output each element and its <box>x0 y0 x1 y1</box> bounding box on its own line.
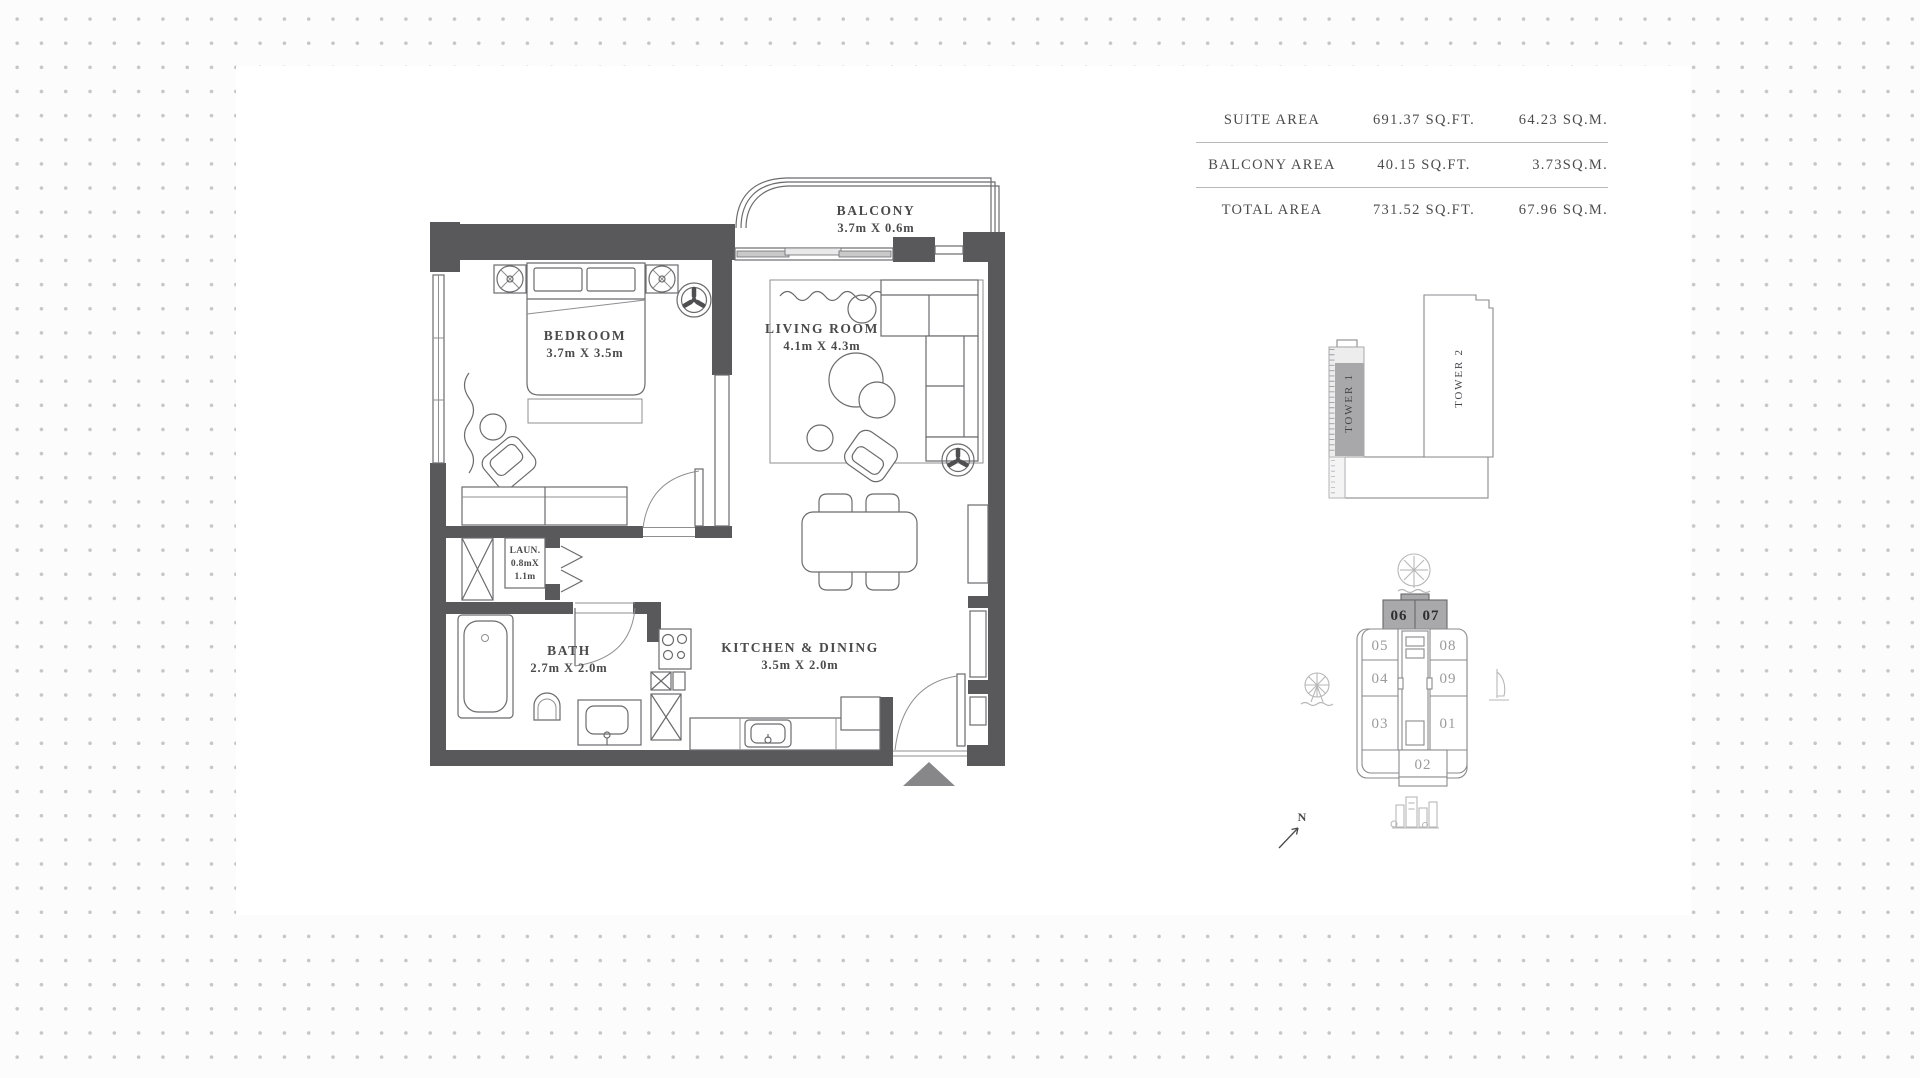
bedroom-armchair <box>479 433 540 493</box>
kitchen-shaft-small <box>651 672 685 690</box>
living-window <box>935 246 963 254</box>
tower-2-label: TOWER 2 <box>1453 348 1465 408</box>
unit-04: 04 <box>1372 671 1389 687</box>
balcony-dims: 3.7m X 0.6m <box>837 221 914 235</box>
tower-1-label: TOWER 1 <box>1343 373 1355 433</box>
north-arrow: N <box>1279 810 1307 848</box>
living-closet <box>968 505 988 583</box>
total-area-sqm: 67.96 SQ.M. <box>1500 202 1608 219</box>
balcony-area-sqm: 3.73SQ.M. <box>1500 157 1608 174</box>
bedroom-rug <box>528 399 642 423</box>
unit-03: 03 <box>1372 716 1389 732</box>
page: SUITE AREA 691.37 SQ.FT. 64.23 SQ.M. BAL… <box>0 0 1920 1078</box>
wardrobe <box>462 487 627 525</box>
suite-area-row: SUITE AREA 691.37 SQ.FT. 64.23 SQ.M. <box>1196 98 1608 142</box>
unit-08: 08 <box>1440 638 1457 654</box>
right-window-b <box>970 697 986 725</box>
bath-vanity <box>578 700 641 745</box>
kitchen-sink <box>745 720 791 747</box>
towers-diagram: TOWER 1 TOWER 2 <box>1300 275 1530 510</box>
duct-shaft <box>462 538 493 600</box>
palm-island-icon <box>1398 554 1430 593</box>
living-fan-icon <box>942 444 974 476</box>
city-skyline-icon <box>1391 797 1439 828</box>
laundry-label: LAUN. <box>510 546 541 556</box>
kitchen-shaft-large <box>651 694 681 740</box>
sailboat-icon <box>1489 669 1509 700</box>
podium <box>1345 457 1488 498</box>
side-table <box>848 295 876 323</box>
suite-area-sqft: 691.37 SQ.FT. <box>1348 112 1500 129</box>
entry-marker-triangle <box>903 762 955 786</box>
bedside-table-left <box>494 265 526 293</box>
unit-05: 05 <box>1372 638 1389 654</box>
bedroom-stool <box>480 414 506 440</box>
coffee-table-small <box>859 382 895 418</box>
bedroom-curtain <box>465 373 474 473</box>
entry-door <box>893 674 967 756</box>
laundry-bifold-doors <box>561 546 582 592</box>
balcony-label: BALCONY <box>837 203 916 218</box>
stove <box>659 629 691 669</box>
total-area-label: TOTAL AREA <box>1196 202 1348 219</box>
total-area-row: TOTAL AREA 731.52 SQ.FT. 67.96 SQ.M. <box>1196 187 1608 232</box>
unit-09: 09 <box>1440 671 1457 687</box>
bathtub <box>458 615 513 718</box>
bedroom-dims: 3.7m X 3.5m <box>546 346 623 360</box>
kitchen-dims: 3.5m X 2.0m <box>761 658 838 672</box>
laundry-dims-2: 1.1m <box>515 572 536 582</box>
partition-wall <box>715 375 729 526</box>
unit-keyplan: 06 07 05 04 03 08 09 01 02 <box>1255 545 1535 855</box>
balcony-area-label: BALCONY AREA <box>1196 157 1348 174</box>
living-armchair <box>841 426 902 485</box>
suite-area-label: SUITE AREA <box>1196 112 1348 129</box>
bedroom-door <box>643 469 703 537</box>
unit-02: 02 <box>1415 757 1432 773</box>
toilet <box>534 693 560 720</box>
north-label: N <box>1298 810 1307 824</box>
suite-area-sqm: 64.23 SQ.M. <box>1500 112 1608 129</box>
total-area-sqft: 731.52 SQ.FT. <box>1348 202 1500 219</box>
bedside-table-right <box>646 265 678 293</box>
bedroom-label: BEDROOM <box>544 328 626 343</box>
kitchen-label: KITCHEN & DINING <box>721 640 879 655</box>
tower-2: TOWER 2 <box>1424 295 1493 457</box>
living-stool <box>807 425 833 451</box>
balcony-sliding-door <box>735 248 893 260</box>
right-window-a <box>970 611 986 677</box>
laundry-dims-1: 0.8mX <box>511 559 539 569</box>
living-room-dims: 4.1m X 4.3m <box>783 339 860 353</box>
dining-table <box>802 494 917 590</box>
sofa <box>881 280 978 461</box>
unit-07: 07 <box>1423 608 1440 624</box>
balcony-area-sqft: 40.15 SQ.FT. <box>1348 157 1500 174</box>
balcony-area-row: BALCONY AREA 40.15 SQ.FT. 3.73SQ.M. <box>1196 142 1608 187</box>
bath-label: BATH <box>547 643 591 658</box>
unit-01: 01 <box>1440 716 1457 732</box>
bath-dims: 2.7m X 2.0m <box>530 661 607 675</box>
bedroom-window <box>433 275 444 463</box>
living-room-label: LIVING ROOM <box>765 321 879 336</box>
area-table: SUITE AREA 691.37 SQ.FT. 64.23 SQ.M. BAL… <box>1196 98 1608 232</box>
bedroom-fan-icon <box>677 283 711 317</box>
unit-06: 06 <box>1391 608 1408 624</box>
floor-plan: BALCONY 3.7m X 0.6m BEDROOM 3.7m X 3.5m … <box>428 168 1008 793</box>
ferris-wheel-icon <box>1301 673 1333 706</box>
